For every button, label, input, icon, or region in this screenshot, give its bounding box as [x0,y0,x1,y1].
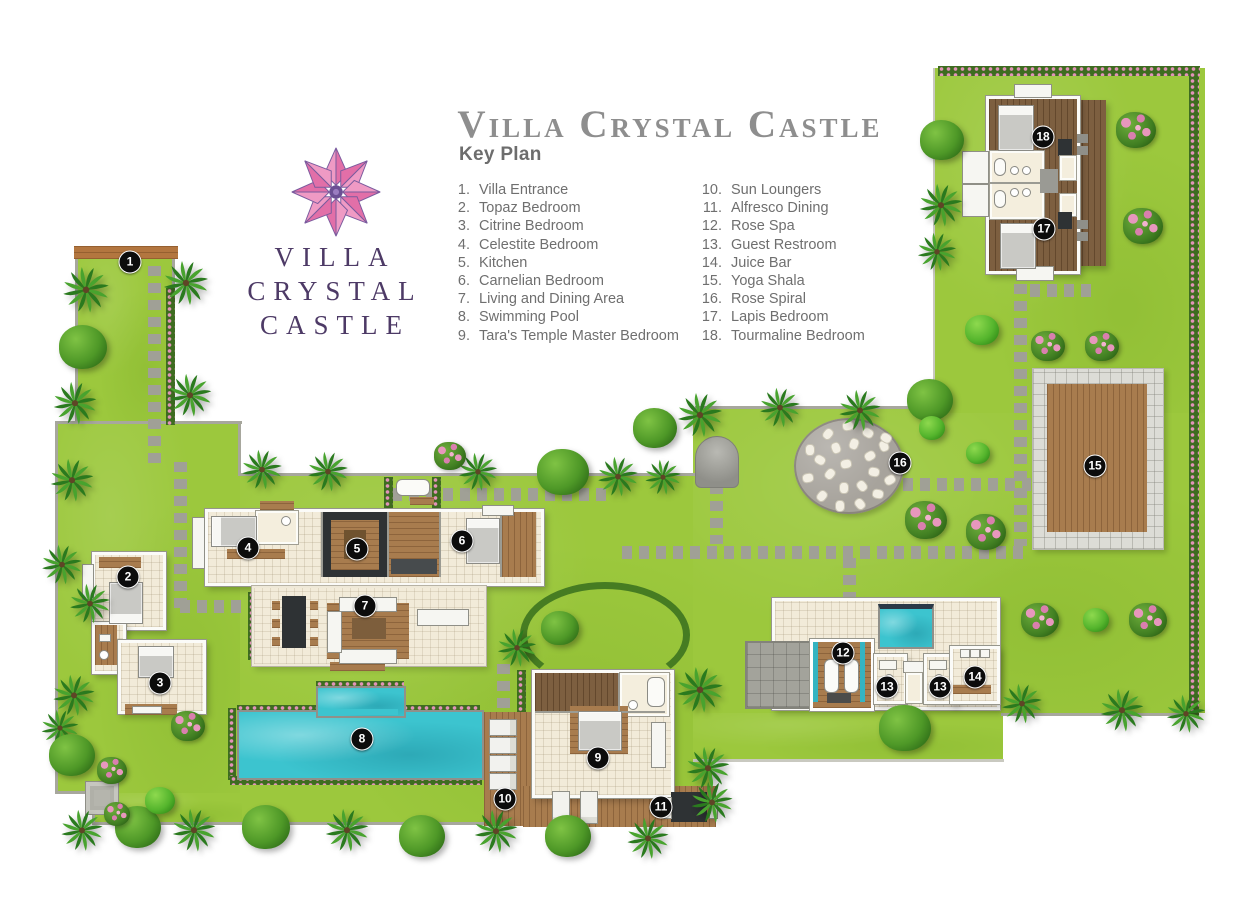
bush-icon [242,805,290,848]
boundary-wall [695,406,937,409]
dining-chair [272,601,280,610]
key-plan-item: 11.Alfresco Dining [696,199,906,217]
palm-tree-icon [55,265,117,315]
spiral-stone [867,466,881,478]
palm-tree-icon [165,807,223,853]
key-item-label: Tourmaline Bedroom [731,327,865,345]
outdoor-bathtub [396,479,430,496]
logo-wordmark: VILLA CRYSTAL CASTLE [232,240,438,342]
balcony [192,517,205,569]
shower [994,158,1006,176]
villa-crystal-castle-site-plan: Villa Crystal Castle Key Plan 1.Villa En… [0,0,1250,913]
toilet [281,516,291,526]
sun-lounger [489,719,517,736]
master-bed [578,711,622,751]
spiral-stone [852,496,867,512]
map-marker-12: 12 [832,642,855,665]
plant-icon [1083,608,1109,631]
plant-icon [965,315,999,346]
lapis-bed [1000,223,1036,269]
key-plan-item: 2.Topaz Bedroom [444,199,694,217]
outdoor-shower [962,151,989,184]
key-item-number: 16. [696,290,722,308]
key-plan-heading: Key Plan [459,144,542,166]
map-marker-7: 7 [354,595,377,618]
swimming-pool-join [320,709,398,715]
dining-table [282,596,306,648]
spiral-stone [822,466,837,482]
interior-wall [387,512,389,577]
boundary-wall [693,759,1004,762]
key-plan-column-1: 1.Villa Entrance2.Topaz Bedroom3.Citrine… [444,181,694,345]
interior-wall [500,512,502,577]
toilet [628,700,638,710]
coffee-table [352,618,386,639]
stool [1077,134,1088,143]
sun-lounger [489,755,517,772]
palm-tree-icon [63,582,117,625]
rose-bush-icon [97,757,127,784]
massage-bed [824,659,839,693]
key-plan-item: 16.Rose Spiral [696,290,906,308]
sink [1010,166,1019,175]
palm-tree-icon [43,457,101,503]
key-item-number: 3. [444,217,470,235]
map-marker-6: 6 [451,530,474,553]
palm-tree-icon [161,372,219,418]
dining-chair [310,601,318,610]
flower-hedge [517,670,526,715]
key-item-label: Kitchen [479,254,527,272]
map-marker-1: 1 [119,251,142,274]
map-marker-2: 2 [117,566,140,589]
stepping-stone-path [1014,284,1027,546]
key-item-number: 5. [444,254,470,272]
bush-icon [49,734,95,775]
key-item-label: Swimming Pool [479,308,579,326]
palm-tree-icon [620,816,676,861]
palm-tree-icon [467,808,525,854]
logo-line-3: CASTLE [232,308,438,342]
shower [994,190,1006,208]
key-plan-item: 8.Swimming Pool [444,308,694,326]
key-item-label: Living and Dining Area [479,290,624,308]
spiral-stone [862,449,877,464]
palm-tree-icon [591,455,645,498]
sink [929,660,947,670]
rose-bush-icon [104,802,130,825]
key-item-label: Carnelian Bedroom [479,272,604,290]
wardrobe [99,557,141,568]
map-marker-11: 11 [650,796,673,819]
interior-wall [990,182,1040,184]
paved-court [745,641,813,709]
sink [99,634,111,642]
rose-spiral-garden [794,418,904,514]
bush-icon [537,449,589,496]
bush-icon [541,611,579,645]
counter [1060,156,1076,180]
dining-chair [272,637,280,646]
page-title: Villa Crystal Castle [430,102,910,147]
key-item-number: 8. [444,308,470,326]
console-table [417,609,469,626]
interior-wall [439,512,441,577]
palm-tree-icon [318,807,376,853]
tourmaline-bed [998,105,1034,151]
key-item-label: Juice Bar [731,254,791,272]
key-item-number: 18. [696,327,722,345]
bush-icon [545,815,591,856]
bush-icon [907,379,953,420]
spiral-stone [847,437,861,452]
key-plan-item: 18.Tourmaline Bedroom [696,327,906,345]
palm-tree-icon [1160,693,1212,735]
key-item-number: 13. [696,236,722,254]
palm-tree-icon [156,259,216,307]
key-item-number: 17. [696,308,722,326]
key-item-number: 11. [696,199,722,217]
key-item-number: 9. [444,327,470,345]
map-marker-18: 18 [1032,126,1055,149]
sink [879,660,897,670]
flower-hedge [1189,72,1199,716]
porch [260,501,294,510]
key-item-number: 14. [696,254,722,272]
palm-tree-icon [1093,687,1151,733]
map-marker-5: 5 [346,538,369,561]
palm-tree-icon [301,450,355,493]
flower-hedge [384,477,393,511]
bar-cup [980,649,990,658]
stepping-stone-path [903,478,1031,491]
interior-wall [321,512,323,577]
spiral-stone [801,472,815,484]
key-item-label: Rose Spa [731,217,795,235]
key-plan-item: 6.Carnelian Bedroom [444,272,694,290]
key-item-label: Sun Loungers [731,181,821,199]
rose-bush-icon [1123,208,1163,244]
logo-line-2: CRYSTAL [232,274,438,308]
bush-icon [879,705,931,752]
key-item-label: Topaz Bedroom [479,199,581,217]
sink [1022,166,1031,175]
palm-tree-icon [54,808,110,853]
stepping-stone-path [180,600,242,613]
key-item-number: 15. [696,272,722,290]
palm-tree-icon [670,391,730,439]
palm-tree-icon [35,543,89,586]
sink [1022,188,1031,197]
key-plan-column-2: 10.Sun Loungers11.Alfresco Dining12.Rose… [696,181,906,345]
palm-tree-icon [235,448,289,491]
dining-chair [310,619,318,628]
spa-mat [827,693,851,703]
map-marker-15: 15 [1084,455,1107,478]
bench-cushion [132,706,162,714]
kitchenette [1058,139,1072,156]
key-item-label: Villa Entrance [479,181,568,199]
palm-tree-icon [46,380,104,426]
bush-icon [633,408,677,448]
wardrobe [391,559,437,574]
flower-hedge [938,66,1200,76]
rose-bush-icon [171,711,205,742]
rose-bush-icon [905,501,947,539]
key-item-label: Alfresco Dining [731,199,829,217]
toilet [99,650,109,660]
dining-chair [272,619,280,628]
key-item-label: Guest Restroom [731,236,837,254]
rose-bush-icon [1021,603,1059,637]
stool [1077,232,1088,241]
palm-tree-icon [491,627,543,669]
logo-line-1: VILLA [232,240,438,274]
plant-icon [966,442,990,464]
palm-tree-icon [832,388,888,433]
rose-bush-icon [434,442,466,471]
stepping-stone-path [1030,284,1094,297]
celestite-ensuite [256,511,298,544]
key-item-label: Citrine Bedroom [479,217,584,235]
stepping-stone-path [174,462,187,608]
sink [1010,188,1019,197]
bush-icon [920,120,964,160]
map-marker-16: 16 [889,452,912,475]
map-marker-8: 8 [351,728,374,751]
stepping-stone-path [710,484,723,544]
key-plan-item: 3.Citrine Bedroom [444,217,694,235]
flower-hedge [432,477,441,511]
carnelian-closet-floor [502,512,536,577]
key-item-number: 6. [444,272,470,290]
sun-lounger [489,737,517,754]
sofa [327,611,342,653]
key-plan-item: 5.Kitchen [444,254,694,272]
spiral-stone [812,453,827,468]
dining-chair [310,637,318,646]
dresser [482,505,514,516]
map-marker-9: 9 [587,747,610,770]
key-plan-item: 17.Lapis Bedroom [696,308,906,326]
spiral-stone [839,458,853,470]
water-channel [813,642,818,702]
palm-tree-icon [753,386,807,429]
interior-wall [618,673,620,712]
key-plan-item: 13.Guest Restroom [696,236,906,254]
key-plan-item: 10.Sun Loungers [696,181,906,199]
rose-bush-icon [966,514,1006,550]
spiral-stone [835,500,845,512]
spiral-stone [854,478,869,494]
stepping-stone-path [622,546,1028,559]
sun-lounger [580,791,598,824]
plant-icon [919,416,945,439]
map-marker-13: 13 [876,676,899,699]
spiral-stone [882,473,897,488]
stair-block [1040,169,1058,193]
water-channel [860,642,865,702]
key-item-label: Yoga Shala [731,272,805,290]
bar-cup [970,649,980,658]
map-marker-13: 13 [929,676,952,699]
key-item-number: 7. [444,290,470,308]
garden-gate-mound [695,436,739,488]
key-plan-item: 7.Living and Dining Area [444,290,694,308]
palm-tree-icon [911,231,963,273]
rose-bush-icon [1129,603,1167,637]
porch [410,497,434,505]
lotus-flower-logo-icon [288,144,384,240]
map-marker-10: 10 [494,788,517,811]
palm-tree-icon [995,682,1049,725]
key-item-number: 2. [444,199,470,217]
palm-tree-icon [912,182,970,228]
map-marker-4: 4 [237,537,260,560]
bar-cup [960,649,970,658]
key-plan-item: 14.Juice Bar [696,254,906,272]
key-item-number: 10. [696,181,722,199]
key-plan-item: 15.Yoga Shala [696,272,906,290]
pillar [906,673,922,703]
key-item-label: Tara's Temple Master Bedroom [479,327,679,345]
key-plan-item: 1.Villa Entrance [444,181,694,199]
bush-icon [59,325,107,368]
kitchenette [1058,212,1072,229]
spiral-stone [805,444,815,456]
key-item-number: 12. [696,217,722,235]
key-plan-item: 12.Rose Spa [696,217,906,235]
bathtub [647,677,665,707]
rose-bush-icon [1116,112,1156,148]
spiral-stone [871,488,885,500]
map-marker-14: 14 [964,666,987,689]
bush-icon [399,815,445,856]
stepping-stone-path [497,664,510,714]
sofa [339,649,397,664]
balcony [1014,84,1052,98]
east-lawn-extension [693,713,1003,761]
rose-bush-icon [1031,331,1065,362]
map-marker-17: 17 [1033,218,1056,241]
key-plan-item: 4.Celestite Bedroom [444,236,694,254]
key-item-number: 4. [444,236,470,254]
palm-tree-icon [679,745,737,791]
plunge-pool [878,604,934,649]
stool [1077,220,1088,229]
spiral-stone [814,488,829,504]
spiral-stone [829,441,843,456]
rose-bush-icon [1085,331,1119,362]
flower-hedge [228,708,236,780]
map-marker-3: 3 [149,672,172,695]
key-item-label: Lapis Bedroom [731,308,829,326]
key-item-number: 1. [444,181,470,199]
stool [1077,146,1088,155]
key-item-label: Rose Spiral [731,290,806,308]
spiral-stone [839,482,849,494]
console-table [651,722,666,768]
key-plan-item: 9.Tara's Temple Master Bedroom [444,327,694,345]
palm-tree-icon [639,458,687,496]
palm-tree-icon [669,665,731,715]
key-item-label: Celestite Bedroom [479,236,598,254]
massage-bed [844,659,859,693]
plant-icon [145,787,175,814]
